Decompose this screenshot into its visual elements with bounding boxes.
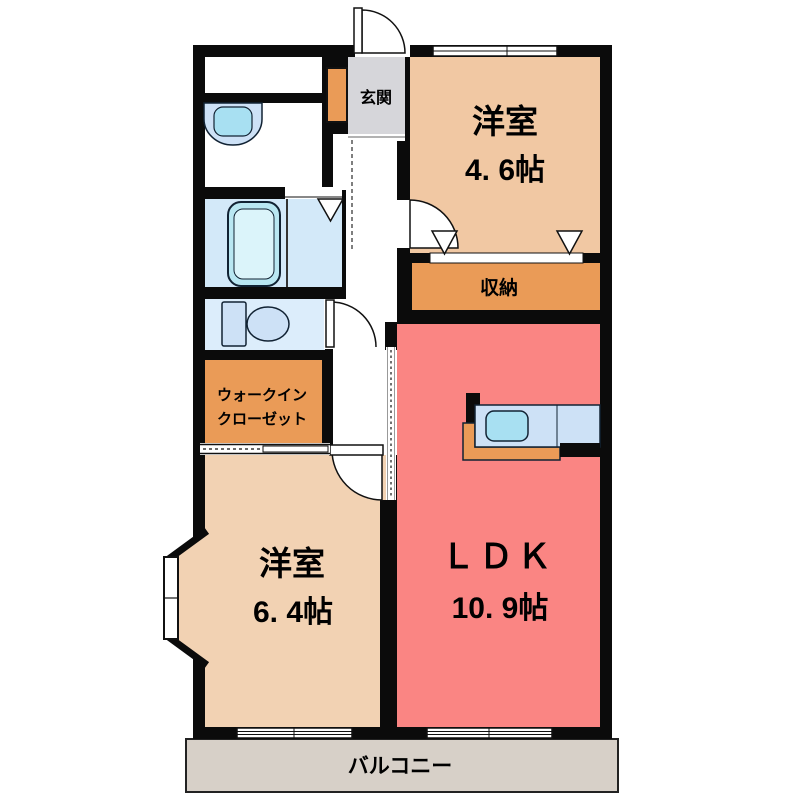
- toilet-tank: [222, 302, 246, 346]
- room64-door-leaf: [330, 445, 383, 455]
- toilet-bowl: [247, 307, 289, 341]
- wall-bath-right: [342, 190, 346, 299]
- kitchen-sink: [486, 411, 528, 441]
- bathtub-inner: [234, 209, 274, 279]
- storage-label: 収納: [480, 276, 518, 299]
- toilet-door-leaf: [326, 300, 334, 347]
- shoe-cabinet: [327, 68, 347, 122]
- wall-hall-ldk: [385, 322, 397, 350]
- ldk-sliding-door: [386, 347, 396, 500]
- wic-door-panel: [263, 446, 328, 452]
- balcony-label: バルコニー: [348, 755, 453, 778]
- room64-label: 洋室: [259, 545, 325, 582]
- ldk-label: ＬＤＫ: [441, 538, 555, 576]
- entrance-door-leaf: [354, 8, 362, 53]
- floor-plan-page: 玄関 洋室 4. 6帖 収納 ウォークイン クローゼット 洋室 6. 4帖 ＬＤ…: [0, 0, 800, 800]
- washroom-upper-area: [205, 57, 322, 93]
- room46-doorway: [397, 200, 410, 248]
- washbasin-bowl: [214, 107, 252, 136]
- wall-bath-bottom: [205, 287, 346, 299]
- window-ldk-balcony: [427, 728, 552, 738]
- window-bedroom-balcony: [237, 728, 352, 738]
- wall-bedroom-ldk: [380, 500, 397, 727]
- floor-plan-drawing: 玄関 洋室 4. 6帖 収納 ウォークイン クローゼット 洋室 6. 4帖 ＬＤ…: [0, 0, 800, 800]
- room46-label: 洋室: [472, 103, 538, 140]
- genkan-label: 玄関: [360, 88, 392, 107]
- kitchen-wall-stub-right: [560, 443, 600, 457]
- wic-label-line1: ウォークイン: [217, 387, 307, 404]
- bathtub: [228, 202, 280, 286]
- wic-sliding-door: [200, 443, 330, 455]
- room46-size: 4. 6帖: [465, 154, 545, 187]
- room64-size: 6. 4帖: [253, 596, 333, 629]
- window-top: [433, 46, 557, 56]
- wic-label-line2: クローゼット: [217, 410, 307, 428]
- closet-door-track: [430, 253, 583, 263]
- ldk-size: 10. 9帖: [452, 592, 549, 625]
- room-western-6-4: [205, 455, 386, 727]
- room-ldk: [397, 324, 600, 727]
